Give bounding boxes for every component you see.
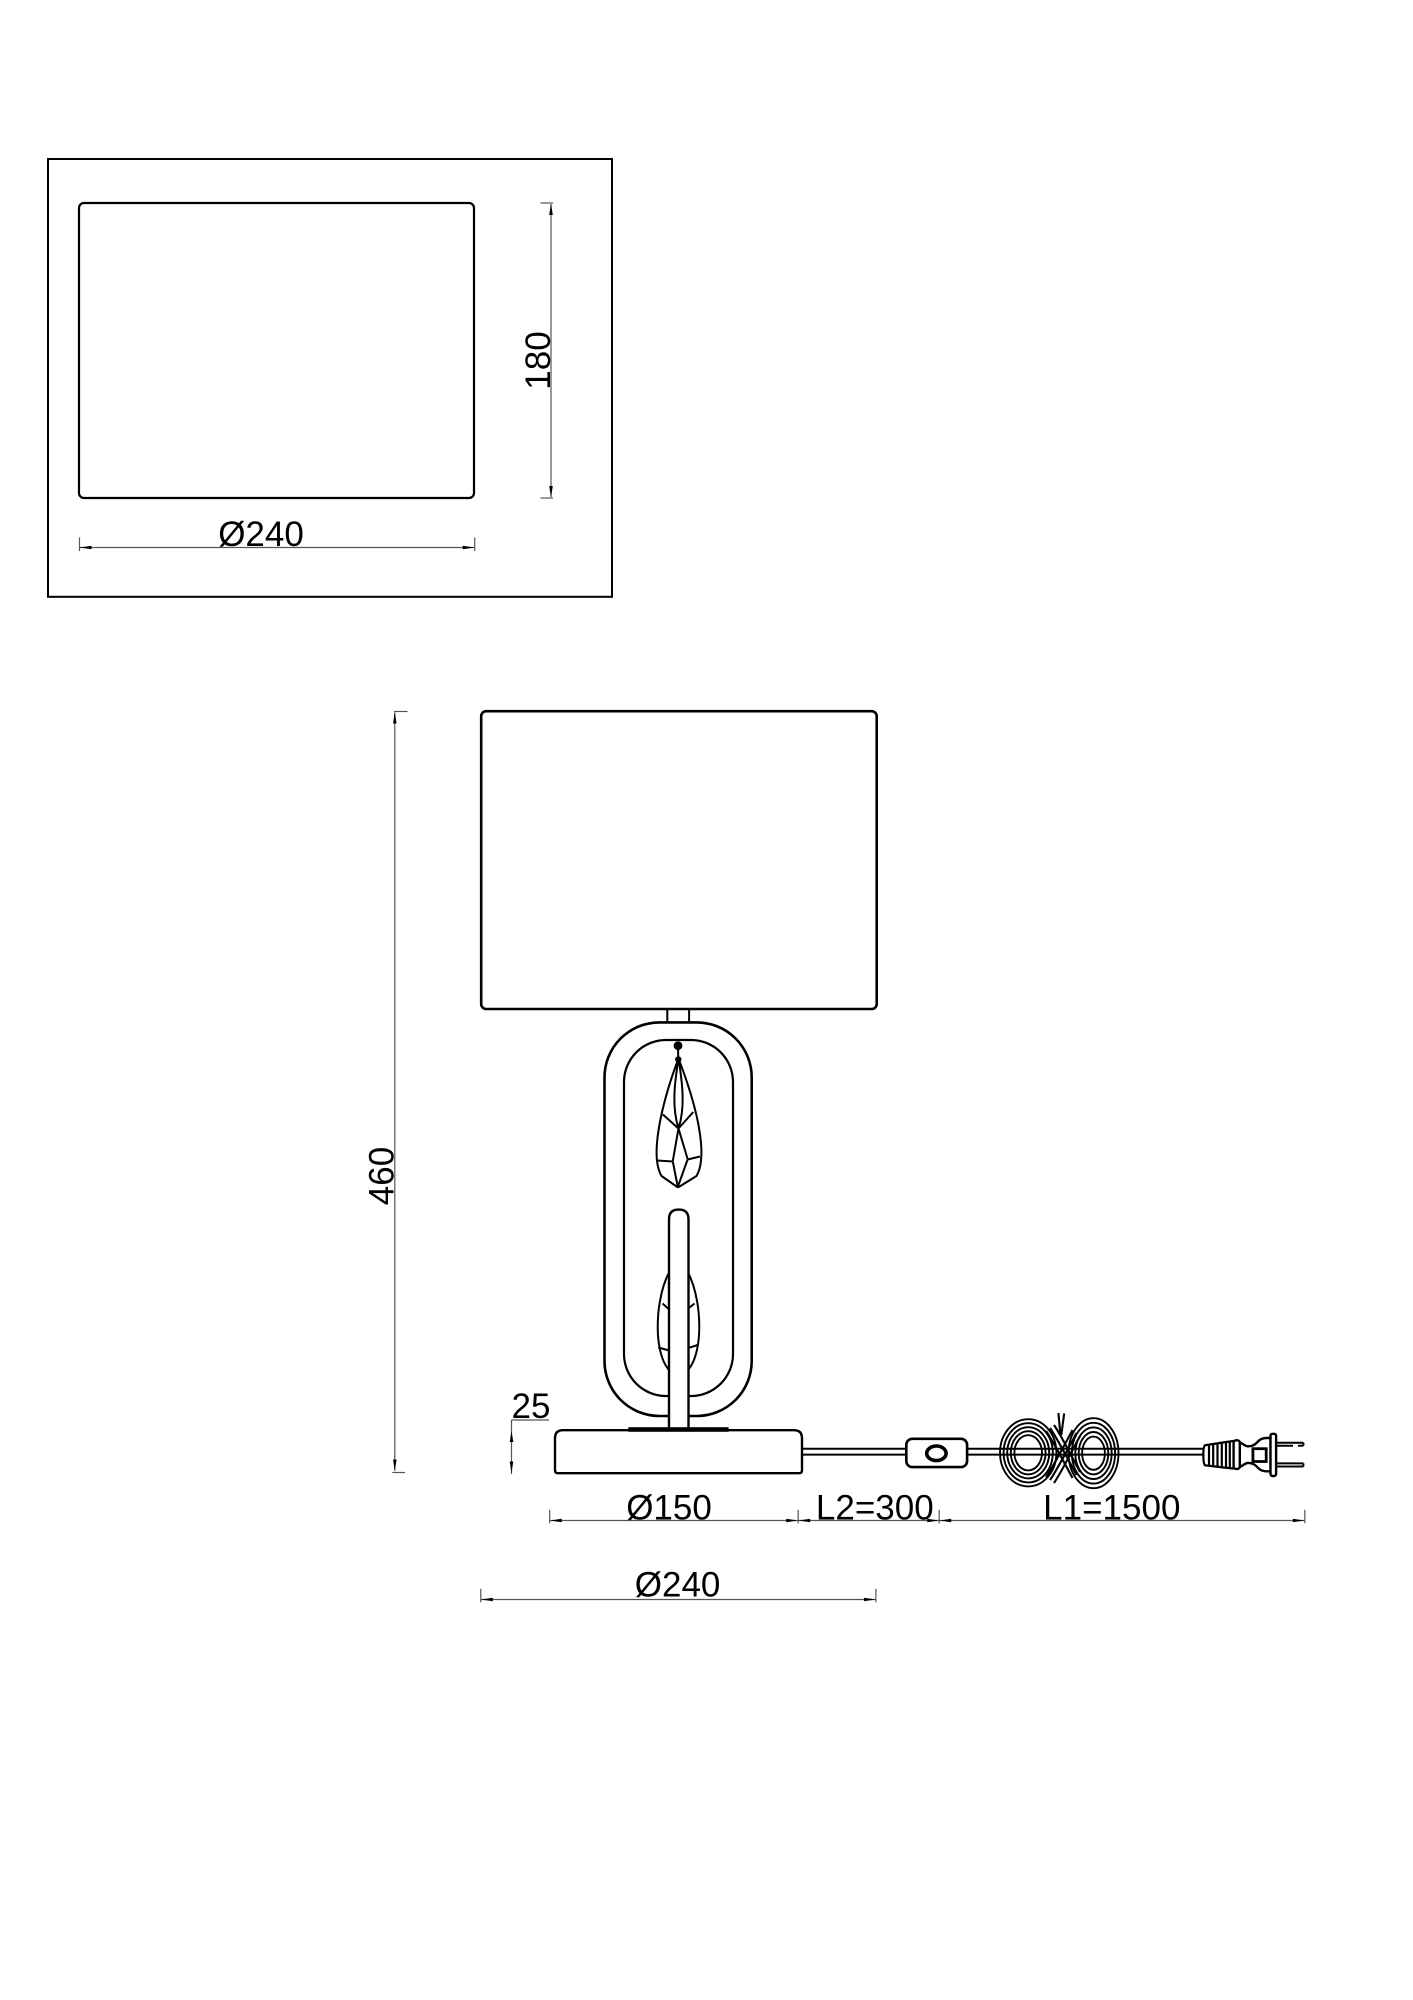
svg-text:460: 460 [363,1147,402,1205]
svg-text:Ø240: Ø240 [635,1566,721,1605]
svg-text:Ø150: Ø150 [626,1489,712,1528]
svg-text:25: 25 [512,1387,551,1426]
svg-text:Ø240: Ø240 [218,515,304,554]
svg-text:180: 180 [519,331,558,389]
svg-text:L2=300: L2=300 [816,1489,934,1528]
svg-text:L1=1500: L1=1500 [1043,1489,1180,1528]
